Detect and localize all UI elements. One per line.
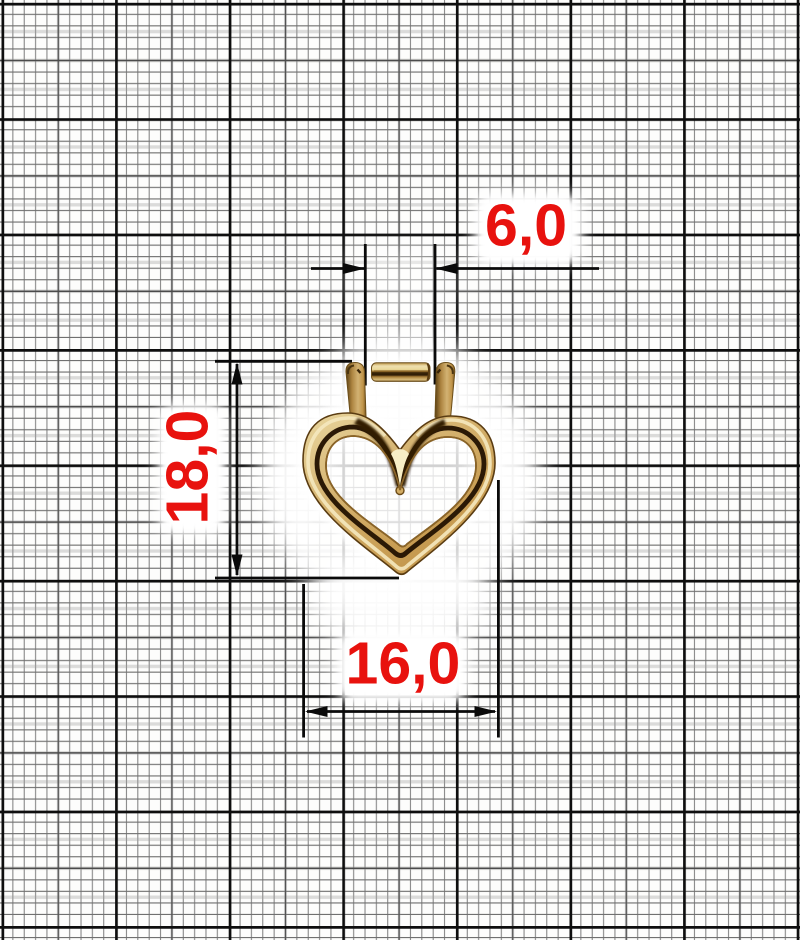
svg-text:18,0: 18,0 xyxy=(155,410,221,525)
svg-text:6,0: 6,0 xyxy=(485,193,567,259)
svg-text:16,0: 16,0 xyxy=(346,631,461,697)
